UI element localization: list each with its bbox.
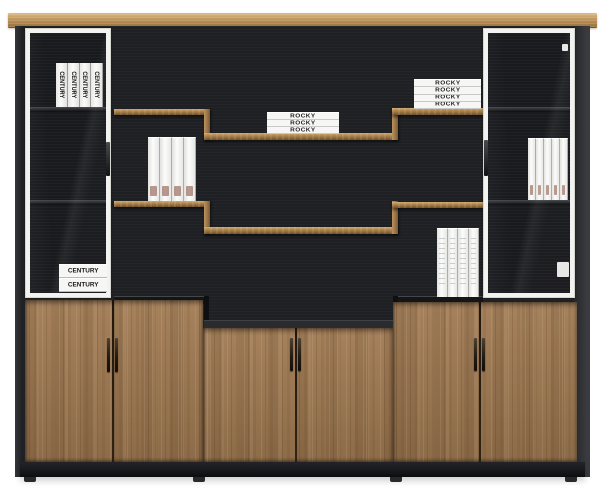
- binder-ruled-label: [450, 238, 456, 285]
- rocky-book-stack-center: ROCKY ROCKY ROCKY: [267, 112, 339, 134]
- book-spine: CENTURY: [91, 63, 103, 107]
- lower-shelf-left-segment: [114, 201, 210, 207]
- book-spine: ROCKY: [414, 80, 481, 87]
- left-glass-pane: CENTURY CENTURY CENTURY CENTURY CENTURY …: [30, 33, 106, 293]
- century-book-group-vertical: CENTURY CENTURY CENTURY CENTURY: [56, 63, 103, 107]
- left-shelf-lower: [30, 200, 106, 205]
- book-spine: CENTURY: [80, 63, 92, 107]
- binder-group-left-shelf: [148, 137, 196, 201]
- rocky-book-stack-right: ROCKY ROCKY ROCKY ROCKY: [414, 79, 481, 109]
- left-side-frame: [15, 26, 25, 477]
- binder-label-mark: [554, 185, 557, 195]
- binder-label-mark: [546, 185, 549, 195]
- binder: [172, 137, 184, 201]
- book-spine: CENTURY: [56, 63, 68, 107]
- binder: [552, 138, 560, 200]
- right-glass-door: [483, 28, 575, 298]
- book-spine: ROCKY: [267, 120, 339, 127]
- left-shelf-upper: [30, 107, 106, 112]
- binder: [469, 228, 480, 297]
- binder-label-mark: [162, 186, 169, 196]
- right-cabinet-handle: [482, 338, 485, 371]
- binder-label-mark: [538, 185, 541, 195]
- right-shelf-upper: [488, 107, 570, 112]
- right-cabinet-handle: [474, 338, 477, 371]
- middle-door-seam: [295, 328, 297, 462]
- right-door-handle: [484, 140, 488, 176]
- book-spine: ROCKY: [267, 127, 339, 134]
- binder-group-bottom-right: [437, 228, 479, 297]
- book-spine-label: CENTURY: [68, 281, 99, 288]
- book-spine: CENTURY: [59, 278, 107, 292]
- right-door-seam: [479, 302, 481, 462]
- book-spine-label: CENTURY: [68, 267, 99, 274]
- binder: [536, 138, 544, 200]
- binder-ruled-label: [471, 238, 477, 285]
- binder: [184, 137, 196, 201]
- book-spine: ROCKY: [414, 87, 481, 94]
- book-spine-label: ROCKY: [435, 80, 461, 86]
- upper-shelf-left-segment: [114, 109, 210, 115]
- binder: [458, 228, 469, 297]
- upper-shelf-middle-segment: [204, 133, 398, 140]
- book-spine-label: ROCKY: [290, 120, 316, 126]
- binder: [448, 228, 459, 297]
- book-spine-label: ROCKY: [435, 102, 461, 108]
- binder-label-mark: [150, 186, 157, 196]
- binder-ruled-label: [460, 238, 466, 285]
- upper-shelf-right-segment: [392, 108, 483, 115]
- binder-ruled-label: [439, 238, 445, 285]
- left-door-seam: [112, 300, 114, 462]
- binder-label-mark: [530, 185, 533, 195]
- binder: [560, 138, 568, 200]
- left-cabinet-handle: [115, 338, 118, 372]
- book-spine-label: ROCKY: [290, 127, 316, 133]
- left-cabinet-handle: [107, 338, 110, 372]
- right-glass-pane: [488, 33, 570, 293]
- lower-cabinet-left-doors: [25, 300, 203, 462]
- small-white-box: [557, 262, 569, 277]
- lower-shelf-middle-segment: [204, 227, 398, 234]
- small-white-label: [562, 44, 568, 51]
- binder-label-mark: [562, 185, 565, 195]
- left-glass-door: CENTURY CENTURY CENTURY CENTURY CENTURY …: [25, 28, 111, 298]
- binder: [544, 138, 552, 200]
- lower-cabinet-right-doors: [393, 302, 577, 462]
- plinth: [20, 462, 585, 477]
- binder-group-right-cabinet: [528, 138, 568, 200]
- middle-cabinet-handle: [290, 338, 293, 371]
- book-spine-label: CENTURY: [70, 72, 77, 99]
- book-spine: ROCKY: [414, 102, 481, 109]
- binder: [160, 137, 172, 201]
- book-spine: CENTURY: [68, 63, 80, 107]
- book-spine-label: CENTURY: [82, 72, 89, 99]
- book-spine: ROCKY: [267, 113, 339, 120]
- book-spine-label: CENTURY: [93, 72, 100, 99]
- cabinet-foot: [24, 477, 36, 482]
- binder: [528, 138, 536, 200]
- cabinet-foot: [193, 477, 205, 482]
- cabinet-foot: [565, 477, 577, 482]
- binder: [148, 137, 160, 201]
- book-spine-label: ROCKY: [435, 88, 461, 94]
- right-shelf-lower: [488, 200, 570, 205]
- book-spine-label: CENTURY: [58, 72, 65, 99]
- book-spine-label: ROCKY: [290, 113, 316, 119]
- book-spine: CENTURY: [59, 264, 107, 278]
- lower-shelf-right-segment: [392, 202, 483, 208]
- middle-cabinet-handle: [298, 338, 301, 371]
- century-book-group-stacked: CENTURY CENTURY: [59, 264, 107, 292]
- book-spine: ROCKY: [414, 95, 481, 102]
- book-spine-label: ROCKY: [435, 95, 461, 101]
- binder-label-mark: [174, 186, 181, 196]
- binder-label-mark: [186, 186, 193, 196]
- photo-background: CENTURY CENTURY CENTURY CENTURY CENTURY …: [0, 0, 603, 500]
- cabinet-foot: [390, 477, 402, 482]
- binder: [437, 228, 448, 297]
- left-door-handle: [106, 142, 110, 176]
